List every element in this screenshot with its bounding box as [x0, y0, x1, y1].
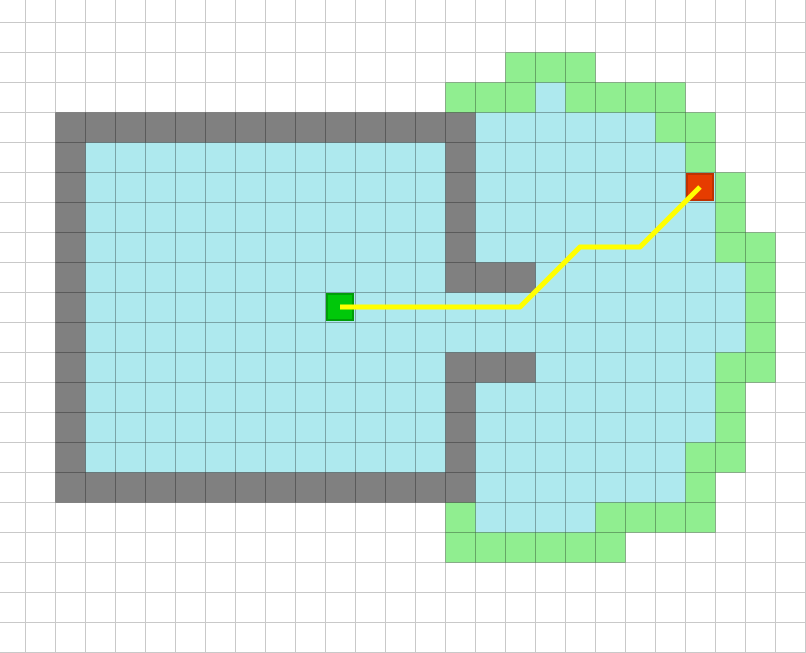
wall-cell — [86, 473, 116, 503]
free-cell — [326, 323, 356, 353]
free-cell — [146, 353, 176, 383]
free-cell — [536, 203, 566, 233]
free-cell — [656, 173, 686, 203]
wall-cell — [356, 113, 386, 143]
free-cell — [476, 203, 506, 233]
free-cell — [296, 143, 326, 173]
free-cell — [86, 323, 116, 353]
free-cell — [536, 233, 566, 263]
free-cell — [146, 443, 176, 473]
wall-cell — [476, 263, 506, 293]
wall-cell — [206, 473, 236, 503]
free-cell — [236, 233, 266, 263]
free-cell — [626, 443, 656, 473]
free-cell — [206, 353, 236, 383]
free-cell — [596, 323, 626, 353]
free-cell — [626, 293, 656, 323]
free-cell — [236, 293, 266, 323]
free-cell — [536, 353, 566, 383]
free-cell — [176, 383, 206, 413]
free-cell — [386, 383, 416, 413]
frontier-cell — [716, 413, 746, 443]
wall-cell — [116, 473, 146, 503]
wall-cell — [386, 113, 416, 143]
free-cell — [626, 353, 656, 383]
wall-cell — [446, 353, 476, 383]
free-cell — [566, 173, 596, 203]
wall-cell — [176, 473, 206, 503]
free-cell — [566, 113, 596, 143]
wall-cell — [56, 473, 86, 503]
free-cell — [176, 443, 206, 473]
free-cell — [176, 203, 206, 233]
free-cell — [476, 383, 506, 413]
frontier-cell — [626, 503, 656, 533]
frontier-cell — [566, 53, 596, 83]
free-cell — [656, 353, 686, 383]
free-cell — [596, 293, 626, 323]
free-cell — [416, 263, 446, 293]
free-cell — [656, 383, 686, 413]
free-cell — [356, 203, 386, 233]
frontier-cell — [446, 533, 476, 563]
free-cell — [116, 383, 146, 413]
free-cell — [386, 263, 416, 293]
free-cell — [146, 413, 176, 443]
wall-cell — [116, 113, 146, 143]
free-cell — [566, 443, 596, 473]
frontier-cell — [716, 443, 746, 473]
free-cell — [116, 233, 146, 263]
frontier-cell — [476, 533, 506, 563]
wall-cell — [446, 383, 476, 413]
free-cell — [656, 233, 686, 263]
free-cell — [266, 323, 296, 353]
free-cell — [176, 353, 206, 383]
free-cell — [86, 263, 116, 293]
free-cell — [596, 383, 626, 413]
frontier-cell — [566, 533, 596, 563]
free-cell — [386, 443, 416, 473]
free-cell — [146, 323, 176, 353]
free-cell — [656, 143, 686, 173]
wall-cell — [446, 173, 476, 203]
wall-cell — [56, 113, 86, 143]
free-cell — [116, 323, 146, 353]
free-cell — [566, 413, 596, 443]
free-cell — [326, 233, 356, 263]
free-cell — [686, 203, 716, 233]
frontier-cell — [536, 533, 566, 563]
free-cell — [536, 473, 566, 503]
free-cell — [626, 413, 656, 443]
free-cell — [116, 143, 146, 173]
free-cell — [146, 173, 176, 203]
free-cell — [386, 353, 416, 383]
wall-cell — [146, 113, 176, 143]
free-cell — [416, 173, 446, 203]
free-cell — [356, 263, 386, 293]
free-cell — [596, 443, 626, 473]
free-cell — [326, 203, 356, 233]
frontier-cell — [446, 503, 476, 533]
wall-cell — [236, 473, 266, 503]
free-cell — [506, 383, 536, 413]
free-cell — [536, 173, 566, 203]
free-cell — [686, 263, 716, 293]
frontier-cell — [566, 83, 596, 113]
wall-cell — [506, 353, 536, 383]
frontier-cell — [746, 263, 776, 293]
wall-cell — [416, 473, 446, 503]
free-cell — [386, 143, 416, 173]
wall-cell — [296, 113, 326, 143]
free-cell — [356, 383, 386, 413]
free-cell — [536, 413, 566, 443]
free-cell — [236, 143, 266, 173]
free-cell — [236, 323, 266, 353]
free-cell — [596, 143, 626, 173]
wall-cell — [446, 473, 476, 503]
free-cell — [236, 203, 266, 233]
wall-cell — [446, 203, 476, 233]
free-cell — [416, 203, 446, 233]
free-cell — [266, 413, 296, 443]
free-cell — [206, 263, 236, 293]
wall-cell — [236, 113, 266, 143]
free-cell — [86, 173, 116, 203]
free-cell — [656, 413, 686, 443]
wall-cell — [416, 113, 446, 143]
free-cell — [116, 203, 146, 233]
free-cell — [326, 413, 356, 443]
frontier-cell — [686, 503, 716, 533]
free-cell — [146, 203, 176, 233]
wall-cell — [56, 443, 86, 473]
free-cell — [266, 143, 296, 173]
frontier-cell — [596, 83, 626, 113]
free-cell — [266, 353, 296, 383]
free-cell — [86, 353, 116, 383]
free-cell — [596, 353, 626, 383]
wall-cell — [56, 173, 86, 203]
free-cell — [236, 173, 266, 203]
free-cell — [416, 443, 446, 473]
free-cell — [296, 233, 326, 263]
frontier-cell — [596, 503, 626, 533]
free-cell — [386, 203, 416, 233]
free-cell — [116, 293, 146, 323]
free-cell — [416, 413, 446, 443]
free-cell — [476, 323, 506, 353]
free-cell — [296, 383, 326, 413]
free-cell — [206, 443, 236, 473]
free-cell — [536, 143, 566, 173]
free-cell — [596, 173, 626, 203]
free-cell — [86, 413, 116, 443]
free-cell — [566, 263, 596, 293]
free-cell — [266, 203, 296, 233]
wall-cell — [326, 113, 356, 143]
free-cell — [86, 293, 116, 323]
free-cell — [686, 293, 716, 323]
free-cell — [506, 473, 536, 503]
free-cell — [476, 143, 506, 173]
free-cell — [626, 383, 656, 413]
free-cell — [656, 323, 686, 353]
free-cell — [536, 503, 566, 533]
wall-cell — [266, 473, 296, 503]
free-cell — [356, 143, 386, 173]
free-cell — [716, 263, 746, 293]
wall-cell — [386, 473, 416, 503]
wall-cell — [446, 143, 476, 173]
free-cell — [266, 443, 296, 473]
free-cell — [626, 203, 656, 233]
free-cell — [146, 293, 176, 323]
free-cell — [566, 323, 596, 353]
wall-cell — [56, 413, 86, 443]
free-cell — [416, 143, 446, 173]
frontier-cell — [656, 503, 686, 533]
free-cell — [386, 413, 416, 443]
free-cell — [536, 293, 566, 323]
free-cell — [386, 173, 416, 203]
wall-cell — [56, 203, 86, 233]
free-cell — [626, 113, 656, 143]
free-cell — [326, 443, 356, 473]
wall-cell — [476, 353, 506, 383]
grid-map-svg — [0, 0, 806, 653]
frontier-cell — [626, 83, 656, 113]
free-cell — [536, 323, 566, 353]
free-cell — [356, 413, 386, 443]
free-cell — [506, 443, 536, 473]
free-cell — [206, 173, 236, 203]
free-cell — [236, 263, 266, 293]
free-cell — [506, 203, 536, 233]
free-cell — [356, 353, 386, 383]
free-cell — [326, 263, 356, 293]
frontier-cell — [686, 143, 716, 173]
free-cell — [536, 83, 566, 113]
free-cell — [626, 323, 656, 353]
free-cell — [506, 503, 536, 533]
free-cell — [536, 113, 566, 143]
free-cell — [206, 143, 236, 173]
free-cell — [506, 113, 536, 143]
free-cell — [356, 233, 386, 263]
free-cell — [326, 143, 356, 173]
wall-cell — [446, 113, 476, 143]
free-cell — [236, 383, 266, 413]
free-cell — [476, 473, 506, 503]
free-cell — [506, 233, 536, 263]
wall-cell — [206, 113, 236, 143]
free-cell — [116, 263, 146, 293]
free-cell — [476, 443, 506, 473]
free-cell — [236, 353, 266, 383]
frontier-cell — [506, 53, 536, 83]
free-cell — [86, 233, 116, 263]
free-cell — [296, 413, 326, 443]
wall-cell — [86, 113, 116, 143]
free-cell — [266, 293, 296, 323]
free-cell — [146, 233, 176, 263]
frontier-cell — [746, 353, 776, 383]
wall-cell — [506, 263, 536, 293]
free-cell — [566, 353, 596, 383]
frontier-cell — [686, 113, 716, 143]
free-cell — [566, 293, 596, 323]
wall-cell — [56, 353, 86, 383]
free-cell — [176, 173, 206, 203]
frontier-cell — [656, 83, 686, 113]
frontier-cell — [716, 353, 746, 383]
free-cell — [626, 473, 656, 503]
free-cell — [656, 473, 686, 503]
wall-cell — [56, 143, 86, 173]
free-cell — [566, 503, 596, 533]
wall-cell — [326, 473, 356, 503]
free-cell — [416, 233, 446, 263]
free-cell — [206, 383, 236, 413]
frontier-cell — [686, 473, 716, 503]
frontier-cell — [716, 203, 746, 233]
free-cell — [326, 383, 356, 413]
wall-cell — [176, 113, 206, 143]
free-cell — [326, 173, 356, 203]
free-cell — [206, 413, 236, 443]
free-cell — [536, 383, 566, 413]
wall-cell — [56, 233, 86, 263]
grid-map-canvas — [0, 0, 806, 653]
free-cell — [566, 473, 596, 503]
free-cell — [176, 293, 206, 323]
free-cell — [596, 113, 626, 143]
free-cell — [266, 263, 296, 293]
wall-cell — [446, 413, 476, 443]
free-cell — [446, 323, 476, 353]
free-cell — [176, 413, 206, 443]
frontier-cell — [506, 533, 536, 563]
free-cell — [236, 413, 266, 443]
free-cell — [536, 443, 566, 473]
free-cell — [476, 113, 506, 143]
wall-cell — [446, 263, 476, 293]
free-cell — [116, 443, 146, 473]
free-cell — [206, 203, 236, 233]
wall-cell — [266, 113, 296, 143]
free-cell — [686, 383, 716, 413]
free-cell — [206, 293, 236, 323]
frontier-cell — [716, 173, 746, 203]
free-cell — [476, 173, 506, 203]
wall-cell — [56, 293, 86, 323]
free-cell — [236, 443, 266, 473]
free-cell — [656, 443, 686, 473]
free-cell — [506, 323, 536, 353]
free-cell — [596, 263, 626, 293]
free-cell — [296, 173, 326, 203]
free-cell — [176, 233, 206, 263]
frontier-cell — [716, 233, 746, 263]
free-cell — [716, 293, 746, 323]
free-cell — [416, 383, 446, 413]
free-cell — [206, 233, 236, 263]
free-cell — [86, 383, 116, 413]
frontier-cell — [746, 293, 776, 323]
free-cell — [296, 443, 326, 473]
wall-cell — [146, 473, 176, 503]
free-cell — [626, 173, 656, 203]
free-cell — [296, 323, 326, 353]
free-cell — [626, 263, 656, 293]
wall-cell — [56, 263, 86, 293]
wall-cell — [446, 443, 476, 473]
free-cell — [566, 383, 596, 413]
free-cell — [386, 323, 416, 353]
frontier-cell — [686, 443, 716, 473]
free-cell — [506, 413, 536, 443]
free-cell — [716, 323, 746, 353]
free-cell — [626, 143, 656, 173]
free-cell — [386, 233, 416, 263]
free-cell — [296, 203, 326, 233]
wall-cell — [296, 473, 326, 503]
frontier-cell — [746, 323, 776, 353]
free-cell — [566, 143, 596, 173]
free-cell — [296, 293, 326, 323]
free-cell — [356, 443, 386, 473]
wall-cell — [56, 383, 86, 413]
free-cell — [266, 383, 296, 413]
free-cell — [296, 353, 326, 383]
free-cell — [356, 173, 386, 203]
free-cell — [686, 233, 716, 263]
wall-cell — [56, 323, 86, 353]
free-cell — [176, 323, 206, 353]
wall-cell — [356, 473, 386, 503]
free-cell — [476, 503, 506, 533]
free-cell — [116, 413, 146, 443]
free-cell — [686, 413, 716, 443]
free-cell — [356, 323, 386, 353]
frontier-cell — [746, 233, 776, 263]
free-cell — [686, 353, 716, 383]
free-cell — [176, 143, 206, 173]
frontier-cell — [536, 53, 566, 83]
free-cell — [476, 413, 506, 443]
free-cell — [176, 263, 206, 293]
free-cell — [116, 173, 146, 203]
free-cell — [146, 383, 176, 413]
free-cell — [506, 143, 536, 173]
free-cell — [656, 293, 686, 323]
frontier-cell — [476, 83, 506, 113]
frontier-cell — [596, 533, 626, 563]
free-cell — [116, 353, 146, 383]
free-cell — [206, 323, 236, 353]
free-cell — [326, 353, 356, 383]
free-cell — [266, 173, 296, 203]
free-cell — [266, 233, 296, 263]
free-cell — [476, 233, 506, 263]
free-cell — [596, 473, 626, 503]
free-cell — [596, 413, 626, 443]
free-cell — [86, 443, 116, 473]
free-cell — [686, 323, 716, 353]
